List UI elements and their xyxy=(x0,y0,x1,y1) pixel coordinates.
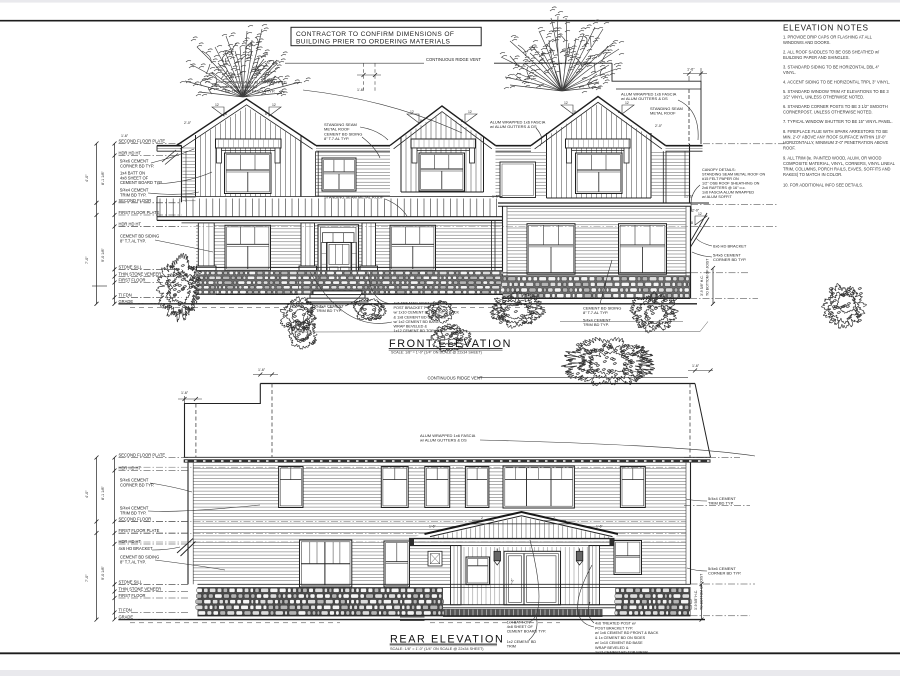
svg-text:8'-1 1/8": 8'-1 1/8" xyxy=(101,485,105,500)
svg-text:TRIM BD TYP.: TRIM BD TYP. xyxy=(316,308,342,313)
svg-text:1x4 BATT ON: 1x4 BATT ON xyxy=(507,621,531,625)
svg-text:POST BRACKET TYP.: POST BRACKET TYP. xyxy=(394,306,432,310)
svg-text:8" T.7.AL TYP.: 8" T.7.AL TYP. xyxy=(324,136,349,141)
svg-text:2. ALL ROOF SADDLES TO BE OSB: 2. ALL ROOF SADDLES TO BE OSB SHEATHED w… xyxy=(783,50,880,55)
svg-text:2'-0": 2'-0" xyxy=(692,209,700,213)
svg-text:4x6 TREATED POST w/: 4x6 TREATED POST w/ xyxy=(394,302,436,306)
svg-text:8: 8 xyxy=(574,110,576,114)
svg-text:4x6 HD BRACKET: 4x6 HD BRACKET xyxy=(119,546,154,551)
svg-text:WRAP BEVELED &: WRAP BEVELED & xyxy=(595,646,629,650)
svg-text:8'-1 1/8": 8'-1 1/8" xyxy=(101,170,105,185)
svg-text:7'-0": 7'-0" xyxy=(85,256,89,264)
svg-text:TO BOTTOM OF JOIST: TO BOTTOM OF JOIST xyxy=(706,258,710,296)
svg-text:w/ ALUM GUTTERS & DS: w/ ALUM GUTTERS & DS xyxy=(420,438,467,443)
svg-text:METAL ROOF: METAL ROOF xyxy=(650,111,676,116)
svg-text:w/ ALUM GUTTERS & DS: w/ ALUM GUTTERS & DS xyxy=(490,124,537,129)
svg-text:1'-6": 1'-6" xyxy=(692,364,700,368)
svg-text:9'-0 1/8": 9'-0 1/8" xyxy=(101,247,105,262)
svg-text:TRIM BD TYP.: TRIM BD TYP. xyxy=(120,510,146,515)
svg-text:3'-9 5/8" H.C.: 3'-9 5/8" H.C. xyxy=(694,590,698,610)
svg-text:THIN STONE VENEER: THIN STONE VENEER xyxy=(119,272,162,277)
svg-text:HDR HD HT: HDR HD HT xyxy=(119,539,142,544)
svg-text:7. TYPICAL WINDOW SHUTTER TO: 7. TYPICAL WINDOW SHUTTER TO BE 15" VINY… xyxy=(783,119,893,124)
svg-text:TRIM BD TYP.: TRIM BD TYP. xyxy=(583,322,609,327)
svg-text:1'-6": 1'-6" xyxy=(181,391,189,395)
svg-text:12: 12 xyxy=(272,103,276,107)
svg-text:1'-6": 1'-6" xyxy=(686,195,694,199)
svg-text:w/ 1x10 CEMENT BD BASE: w/ 1x10 CEMENT BD BASE xyxy=(595,641,643,645)
svg-text:7'-0": 7'-0" xyxy=(85,574,89,582)
svg-text:WRAP BEVELED &: WRAP BEVELED & xyxy=(394,325,428,329)
svg-text:T/ FDN: T/ FDN xyxy=(119,608,132,613)
svg-text:TRIM, COLUMNS, PORCH RAILS, EA: TRIM, COLUMNS, PORCH RAILS, EAVES, SOFFI… xyxy=(783,167,891,172)
svg-text:SECOND FLOOR: SECOND FLOOR xyxy=(119,198,152,203)
svg-text:4x8 SHEET OF: 4x8 SHEET OF xyxy=(507,625,534,629)
svg-text:8" T.7.AL TYP.: 8" T.7.AL TYP. xyxy=(120,238,146,243)
svg-text:#15 FELT PAPER ON: #15 FELT PAPER ON xyxy=(702,177,739,181)
svg-text:8: 8 xyxy=(420,119,422,123)
svg-text:1/2" OSB ROOF SHEATHING ON: 1/2" OSB ROOF SHEATHING ON xyxy=(702,182,760,186)
svg-text:1'-6": 1'-6" xyxy=(258,368,266,372)
svg-text:8: 8 xyxy=(618,110,620,114)
svg-text:4. ACCENT SIDING TO BE HORIZO: 4. ACCENT SIDING TO BE HORIZONTAL TRPL 3… xyxy=(783,80,890,85)
svg-text:HDR HD HT: HDR HD HT xyxy=(119,151,142,156)
svg-text:12: 12 xyxy=(468,110,472,114)
svg-text:TRIM BD TYP.: TRIM BD TYP. xyxy=(120,192,146,197)
svg-text:FIRST FLOOR: FIRST FLOOR xyxy=(119,278,146,283)
svg-text:CORNERPOST, UNLESS OTHERWISE N: CORNERPOST, UNLESS OTHERWISE NOTED. xyxy=(783,110,873,115)
svg-text:CORNER BD TYP.: CORNER BD TYP. xyxy=(708,571,741,576)
svg-text:TRIM: TRIM xyxy=(507,645,516,649)
svg-text:COMPOSITE MATERIAL, VINYL, COR: COMPOSITE MATERIAL, VINYL, CORNERS, VINY… xyxy=(783,161,896,166)
svg-text:WINDOWS AND DOORS.: WINDOWS AND DOORS. xyxy=(783,40,831,45)
svg-text:SECOND FLOOR: SECOND FLOOR xyxy=(119,517,152,522)
svg-text:4'-0": 4'-0" xyxy=(85,490,89,498)
svg-text:CEMENT BOARD TYP.: CEMENT BOARD TYP. xyxy=(120,180,163,185)
svg-text:8" T.7.AL TYP.: 8" T.7.AL TYP. xyxy=(120,559,146,564)
svg-text:1'-6": 1'-6" xyxy=(596,525,604,529)
svg-text:6. STANDARD CORNER POSTS TO B: 6. STANDARD CORNER POSTS TO BE 3 1/2" SM… xyxy=(783,104,888,109)
svg-text:T/ FDN: T/ FDN xyxy=(119,293,132,298)
svg-text:VINYL.: VINYL. xyxy=(783,70,796,75)
svg-text:w/ 1x2 CEMENT BD BASE: w/ 1x2 CEMENT BD BASE xyxy=(394,320,440,324)
svg-text:2'-0": 2'-0" xyxy=(655,124,663,128)
svg-text:8: 8 xyxy=(691,221,693,225)
svg-text:STANDING SEAM METAL ROOF ON: STANDING SEAM METAL ROOF ON xyxy=(702,173,765,177)
svg-text:HDR HD HT: HDR HD HT xyxy=(119,466,142,471)
svg-text:3'-9 5/8" H.C.: 3'-9 5/8" H.C. xyxy=(700,275,704,296)
svg-text:1'-6": 1'-6" xyxy=(492,195,500,199)
svg-text:3. STANDARD SIDING TO BE HORI: 3. STANDARD SIDING TO BE HORIZONTAL DBL … xyxy=(783,65,880,70)
svg-text:TO BOTTOM OF JOIST: TO BOTTOM OF JOIST xyxy=(700,574,704,610)
svg-text:BUILDING PAPER AND SHINGLES.: BUILDING PAPER AND SHINGLES. xyxy=(783,55,850,60)
svg-text:ROOF.: ROOF. xyxy=(783,146,796,151)
svg-text:CONTINUOUS RIDGE VENT: CONTINUOUS RIDGE VENT xyxy=(426,57,481,62)
svg-text:1'-6": 1'-6" xyxy=(357,88,365,92)
svg-text:ELEVATION NOTES: ELEVATION NOTES xyxy=(783,23,869,32)
svg-text:CONTRACTOR TO CONFIRM DIMENSIO: CONTRACTOR TO CONFIRM DIMENSIONS OF xyxy=(296,31,454,38)
svg-text:GRADE: GRADE xyxy=(119,615,134,620)
svg-text:STONE SILL: STONE SILL xyxy=(119,580,143,585)
svg-text:9'-0 1/8": 9'-0 1/8" xyxy=(101,565,105,580)
svg-text:FIRST FLOOR PLATE: FIRST FLOOR PLATE xyxy=(119,210,160,215)
svg-text:1'-6": 1'-6" xyxy=(429,525,437,529)
svg-text:5. STANDARD WINDOW TRIM AT EL: 5. STANDARD WINDOW TRIM AT ELEVATIONS TO… xyxy=(783,89,889,94)
svg-text:SCALE: 1/8" = 1'-0" (1/4" ON S: SCALE: 1/8" = 1'-0" (1/4" ON SCALE @ 22x… xyxy=(390,647,484,651)
svg-text:12: 12 xyxy=(564,101,568,105)
svg-text:THIN STONE VENEER: THIN STONE VENEER xyxy=(119,587,162,592)
svg-text:10. FOR ADDITIONAL INFO SEE D: 10. FOR ADDITIONAL INFO SEE DETAILS. xyxy=(783,183,863,188)
svg-text:1. PROVIDE DRIP CAPS OR FLASH: 1. PROVIDE DRIP CAPS OR FLASHING AT ALL xyxy=(783,35,873,40)
svg-text:2: 2 xyxy=(553,516,555,520)
svg-text:GRADE: GRADE xyxy=(119,299,134,304)
svg-text:1x2 CEMENT BD: 1x2 CEMENT BD xyxy=(507,640,537,644)
svg-text:8: 8 xyxy=(225,112,227,116)
svg-text:HDR HD HT: HDR HD HT xyxy=(119,222,142,227)
svg-text:FIRST FLOOR PLATE: FIRST FLOOR PLATE xyxy=(119,528,160,533)
svg-text:12: 12 xyxy=(410,110,414,114)
svg-text:SECOND FLOOR PLATE: SECOND FLOOR PLATE xyxy=(119,139,166,144)
svg-text:HORIZONTALLY, MINIMUM 3'-0" P: HORIZONTALLY, MINIMUM 3'-0" PENETRATION … xyxy=(783,140,888,145)
svg-text:4x6 TREATED POST w/: 4x6 TREATED POST w/ xyxy=(595,622,637,626)
svg-text:2'-0": 2'-0" xyxy=(184,121,192,125)
svg-text:CEMENT BOARD TYP.: CEMENT BOARD TYP. xyxy=(507,630,546,634)
svg-text:1x6 FASCIA ALUM WRAPPED: 1x6 FASCIA ALUM WRAPPED xyxy=(702,191,754,195)
svg-text:8" T.7.AL TYP.: 8" T.7.AL TYP. xyxy=(583,310,608,315)
svg-text:2: 2 xyxy=(481,516,483,520)
svg-text:w/ 1x6 CEMENT BD FRONT & BACK: w/ 1x6 CEMENT BD FRONT & BACK xyxy=(595,631,659,635)
svg-text:4'-0": 4'-0" xyxy=(85,174,89,182)
svg-text:6x6 HD BRACKET: 6x6 HD BRACKET xyxy=(713,244,747,249)
svg-text:BUILDING PRIER TO ORDERING MAT: BUILDING PRIER TO ORDERING MATERIALS xyxy=(296,39,451,46)
svg-text:1'-6": 1'-6" xyxy=(687,68,695,72)
svg-text:& 1x CEMENT BD ON SIDES: & 1x CEMENT BD ON SIDES xyxy=(595,636,646,640)
svg-text:8: 8 xyxy=(461,119,463,123)
svg-text:12: 12 xyxy=(625,101,629,105)
svg-text:8: 8 xyxy=(265,112,267,116)
svg-text:2x6 RAFTERS @ 16" o.c.: 2x6 RAFTERS @ 16" o.c. xyxy=(702,186,746,190)
svg-text:CORNER BD TYP.: CORNER BD TYP. xyxy=(713,257,746,262)
svg-text:SECOND FLOOR PLATE: SECOND FLOOR PLATE xyxy=(119,453,166,458)
svg-text:POST BRACKET TYP.: POST BRACKET TYP. xyxy=(595,626,633,630)
svg-text:CONTINUOUS RIDGE VENT: CONTINUOUS RIDGE VENT xyxy=(428,376,483,381)
svg-text:STANDING SEAM METAL ROOF: STANDING SEAM METAL ROOF xyxy=(324,195,384,200)
svg-text:8. FIREPLACE FLUE WITH SPARK: 8. FIREPLACE FLUE WITH SPARK ARRESTORS T… xyxy=(783,129,888,134)
svg-text:1/2" VINYL, UNLESS OTHERWISE N: 1/2" VINYL, UNLESS OTHERWISE NOTED. xyxy=(783,95,864,100)
svg-text:SCALE: 1/8" = 1'-0" (1/4" ON S: SCALE: 1/8" = 1'-0" (1/4" ON SCALE @ 22x… xyxy=(391,351,482,355)
svg-text:CANOPY DETAILS:: CANOPY DETAILS: xyxy=(702,168,736,172)
svg-text:9. ALL TRIM (ie. PAINTED WOOD: 9. ALL TRIM (ie. PAINTED WOOD, ALUM, OR … xyxy=(783,156,881,161)
svg-text:CORNER BD TYP.: CORNER BD TYP. xyxy=(120,163,154,168)
svg-text:STONE SILL: STONE SILL xyxy=(119,265,143,270)
svg-text:w/ ALUM SOFFIT: w/ ALUM SOFFIT xyxy=(702,195,732,199)
svg-text:CORNER BD TYP.: CORNER BD TYP. xyxy=(120,482,154,487)
svg-text:12: 12 xyxy=(215,103,219,107)
svg-text:RAKES) TO MATCH IN COLOR.: RAKES) TO MATCH IN COLOR. xyxy=(783,172,842,177)
svg-text:1'-6": 1'-6" xyxy=(121,134,129,138)
svg-text:FIRST FLOOR: FIRST FLOOR xyxy=(119,593,146,598)
svg-text:MIN. 2'-0" ABOVE ANY ROOF SURF: MIN. 2'-0" ABOVE ANY ROOF SURFACE WITHIN… xyxy=(783,135,886,140)
svg-text:BD TRIM SUB FASCIA TYP.: BD TRIM SUB FASCIA TYP. xyxy=(225,89,275,94)
svg-text:TRIM BD TYP.: TRIM BD TYP. xyxy=(708,501,734,506)
